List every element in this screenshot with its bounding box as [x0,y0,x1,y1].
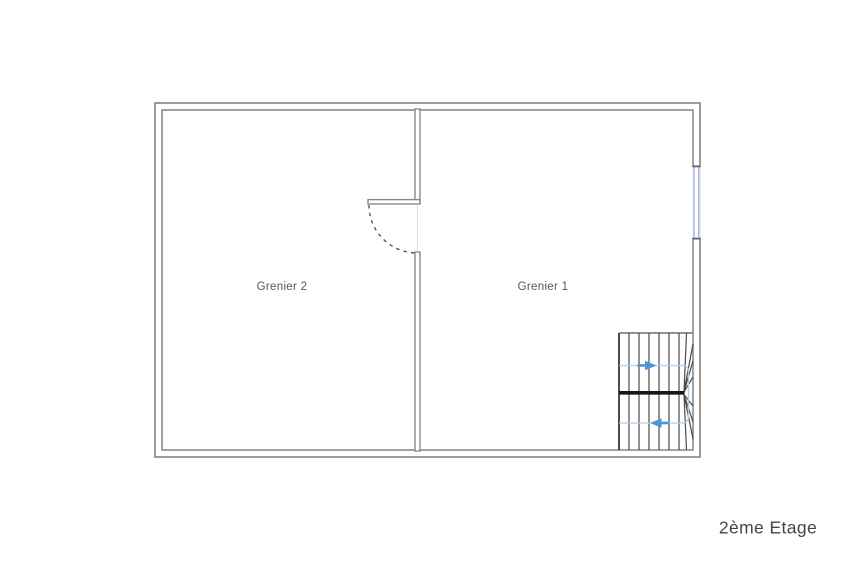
floor-plan-drawing [0,0,860,577]
window [692,166,701,239]
room-label-grenier-2: Grenier 2 [257,281,308,293]
door-leaf [368,200,420,204]
interior-wall-upper-segment [415,109,420,203]
inner-wall-outline [162,110,693,450]
interior-wall-lower-segment [415,252,420,451]
room-label-grenier-1: Grenier 1 [518,281,569,293]
floor-title: 2ème Etage [719,518,817,539]
floor-plan-page: Grenier 2 Grenier 1 2ème Etage [0,0,860,577]
